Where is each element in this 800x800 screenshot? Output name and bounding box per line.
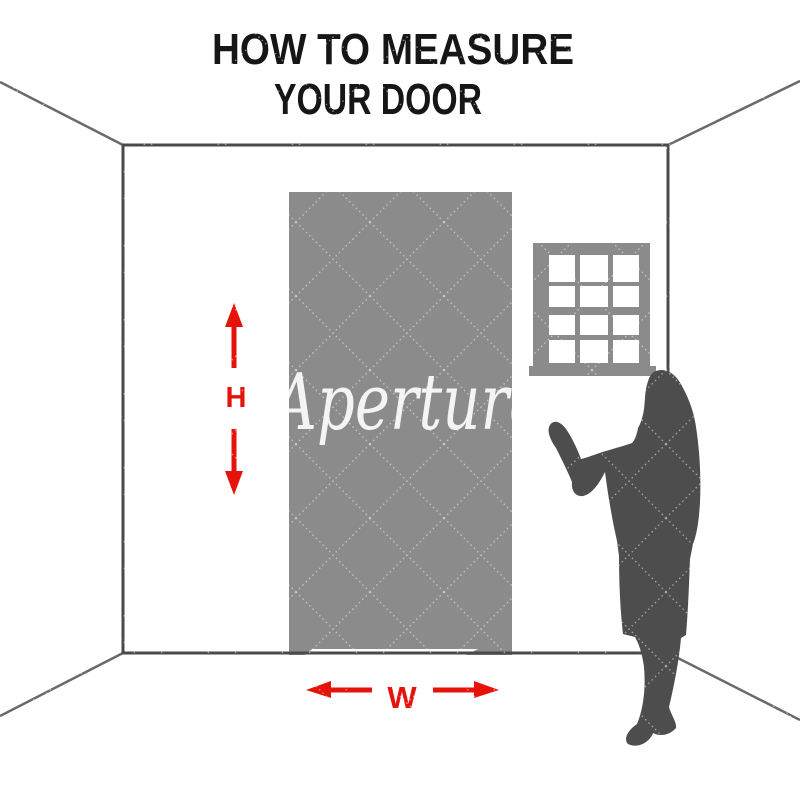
watermark-lattice-overlay [0, 0, 800, 800]
how-to-measure-diagram: Aperture H W HOW TO MEASURE [0, 0, 800, 800]
scene-canvas: Aperture H W HOW TO MEASURE [0, 0, 800, 800]
